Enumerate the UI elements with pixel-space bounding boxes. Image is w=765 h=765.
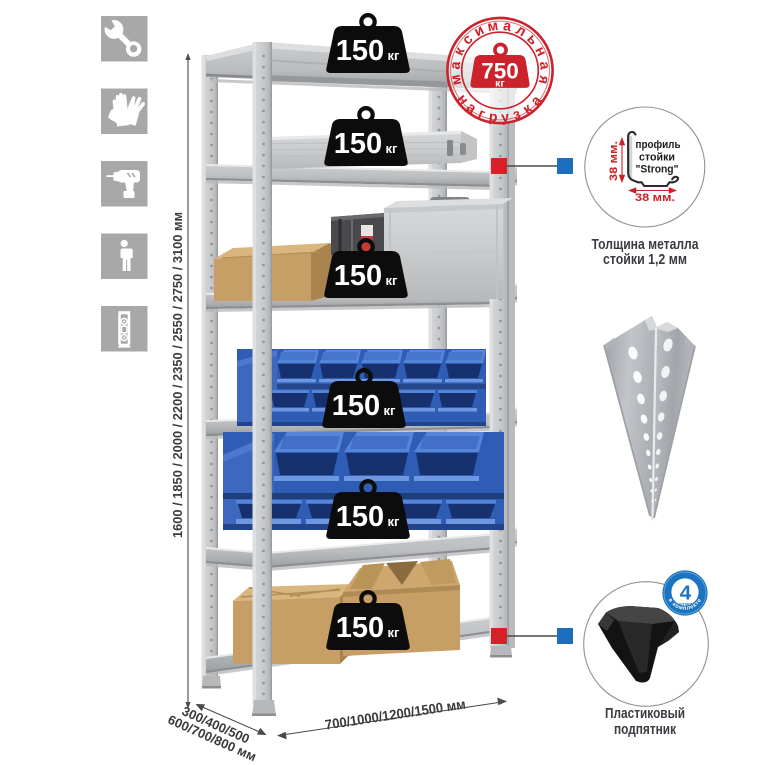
svg-text:кг: кг [388,514,401,529]
svg-text:1600 / 1850 / 2000 / 2200 / 23: 1600 / 1850 / 2000 / 2200 / 2350 / 2550 … [170,212,185,538]
svg-text:кг: кг [386,141,399,156]
svg-text:стойки: стойки [639,152,675,164]
svg-text:150: 150 [334,128,382,160]
svg-text:38 мм.: 38 мм. [635,192,675,204]
svg-text:подпятник: подпятник [614,721,676,738]
svg-text:150: 150 [336,612,384,644]
svg-text:"Strong": "Strong" [636,164,679,176]
svg-text:кг: кг [495,78,505,90]
svg-text:Пластиковый: Пластиковый [605,705,685,722]
svg-text:150: 150 [336,35,384,67]
svg-text:150: 150 [334,260,382,292]
svg-text:стойки 1,2 мм: стойки 1,2 мм [603,251,687,268]
svg-text:профиль: профиль [636,139,681,151]
svg-text:кг: кг [388,48,401,63]
svg-text:кг: кг [384,403,397,418]
svg-text:700/1000/1200/1500 мм: 700/1000/1200/1500 мм [324,697,467,733]
svg-text:150: 150 [336,501,384,533]
svg-text:кг: кг [388,625,401,640]
svg-text:кг: кг [386,273,399,288]
svg-text:150: 150 [332,390,380,422]
svg-text:38 мм.: 38 мм. [608,141,620,181]
